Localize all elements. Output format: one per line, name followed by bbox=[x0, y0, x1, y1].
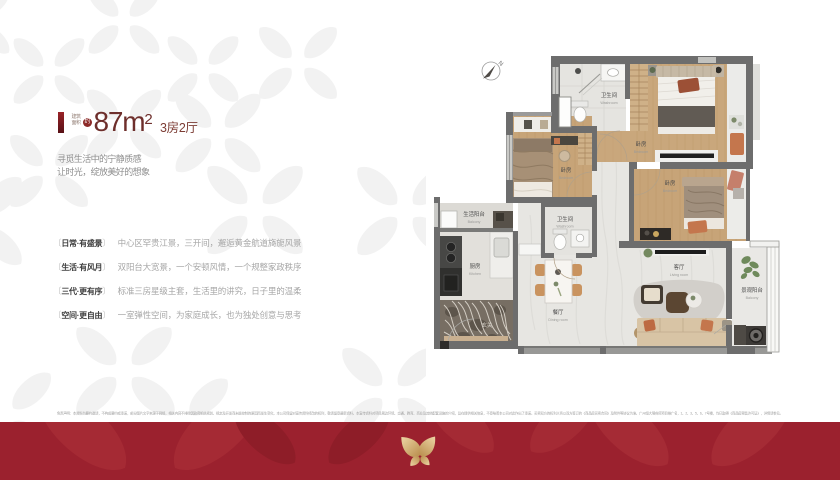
svg-text:Kitchen: Kitchen bbox=[469, 272, 481, 276]
svg-text:卧房: 卧房 bbox=[636, 140, 647, 148]
svg-text:玄关: 玄关 bbox=[482, 321, 493, 329]
svg-text:餐厅: 餐厅 bbox=[553, 308, 564, 316]
svg-text:Washroom: Washroom bbox=[600, 101, 617, 105]
svg-text:Dining room: Dining room bbox=[548, 318, 567, 322]
svg-text:卫生间: 卫生间 bbox=[557, 215, 573, 223]
svg-text:厨房: 厨房 bbox=[470, 262, 481, 270]
svg-text:卧房: 卧房 bbox=[665, 179, 676, 187]
svg-text:Living room: Living room bbox=[670, 273, 689, 277]
svg-text:N: N bbox=[497, 60, 504, 67]
svg-text:客厅: 客厅 bbox=[674, 263, 685, 271]
svg-text:景观阳台: 景观阳台 bbox=[741, 286, 763, 294]
svg-text:Washroom: Washroom bbox=[556, 225, 573, 229]
svg-text:Bedroom: Bedroom bbox=[663, 189, 678, 193]
svg-text:免责声明：本资料为要约邀请，不构成要约或承诺，部分图片文字来: 免责声明：本资料为要约邀请，不构成要约或承诺，部分图片文字来源于网络，相关内容不… bbox=[57, 411, 783, 416]
svg-text:卫生间: 卫生间 bbox=[601, 91, 617, 99]
svg-text:卧房: 卧房 bbox=[561, 166, 572, 174]
svg-text:Bedroom: Bedroom bbox=[634, 150, 649, 154]
svg-text:生活阳台: 生活阳台 bbox=[463, 210, 485, 218]
svg-text:Balcony: Balcony bbox=[746, 296, 759, 300]
svg-text:Bedroom: Bedroom bbox=[559, 176, 574, 180]
svg-text:Balcony: Balcony bbox=[468, 220, 481, 224]
